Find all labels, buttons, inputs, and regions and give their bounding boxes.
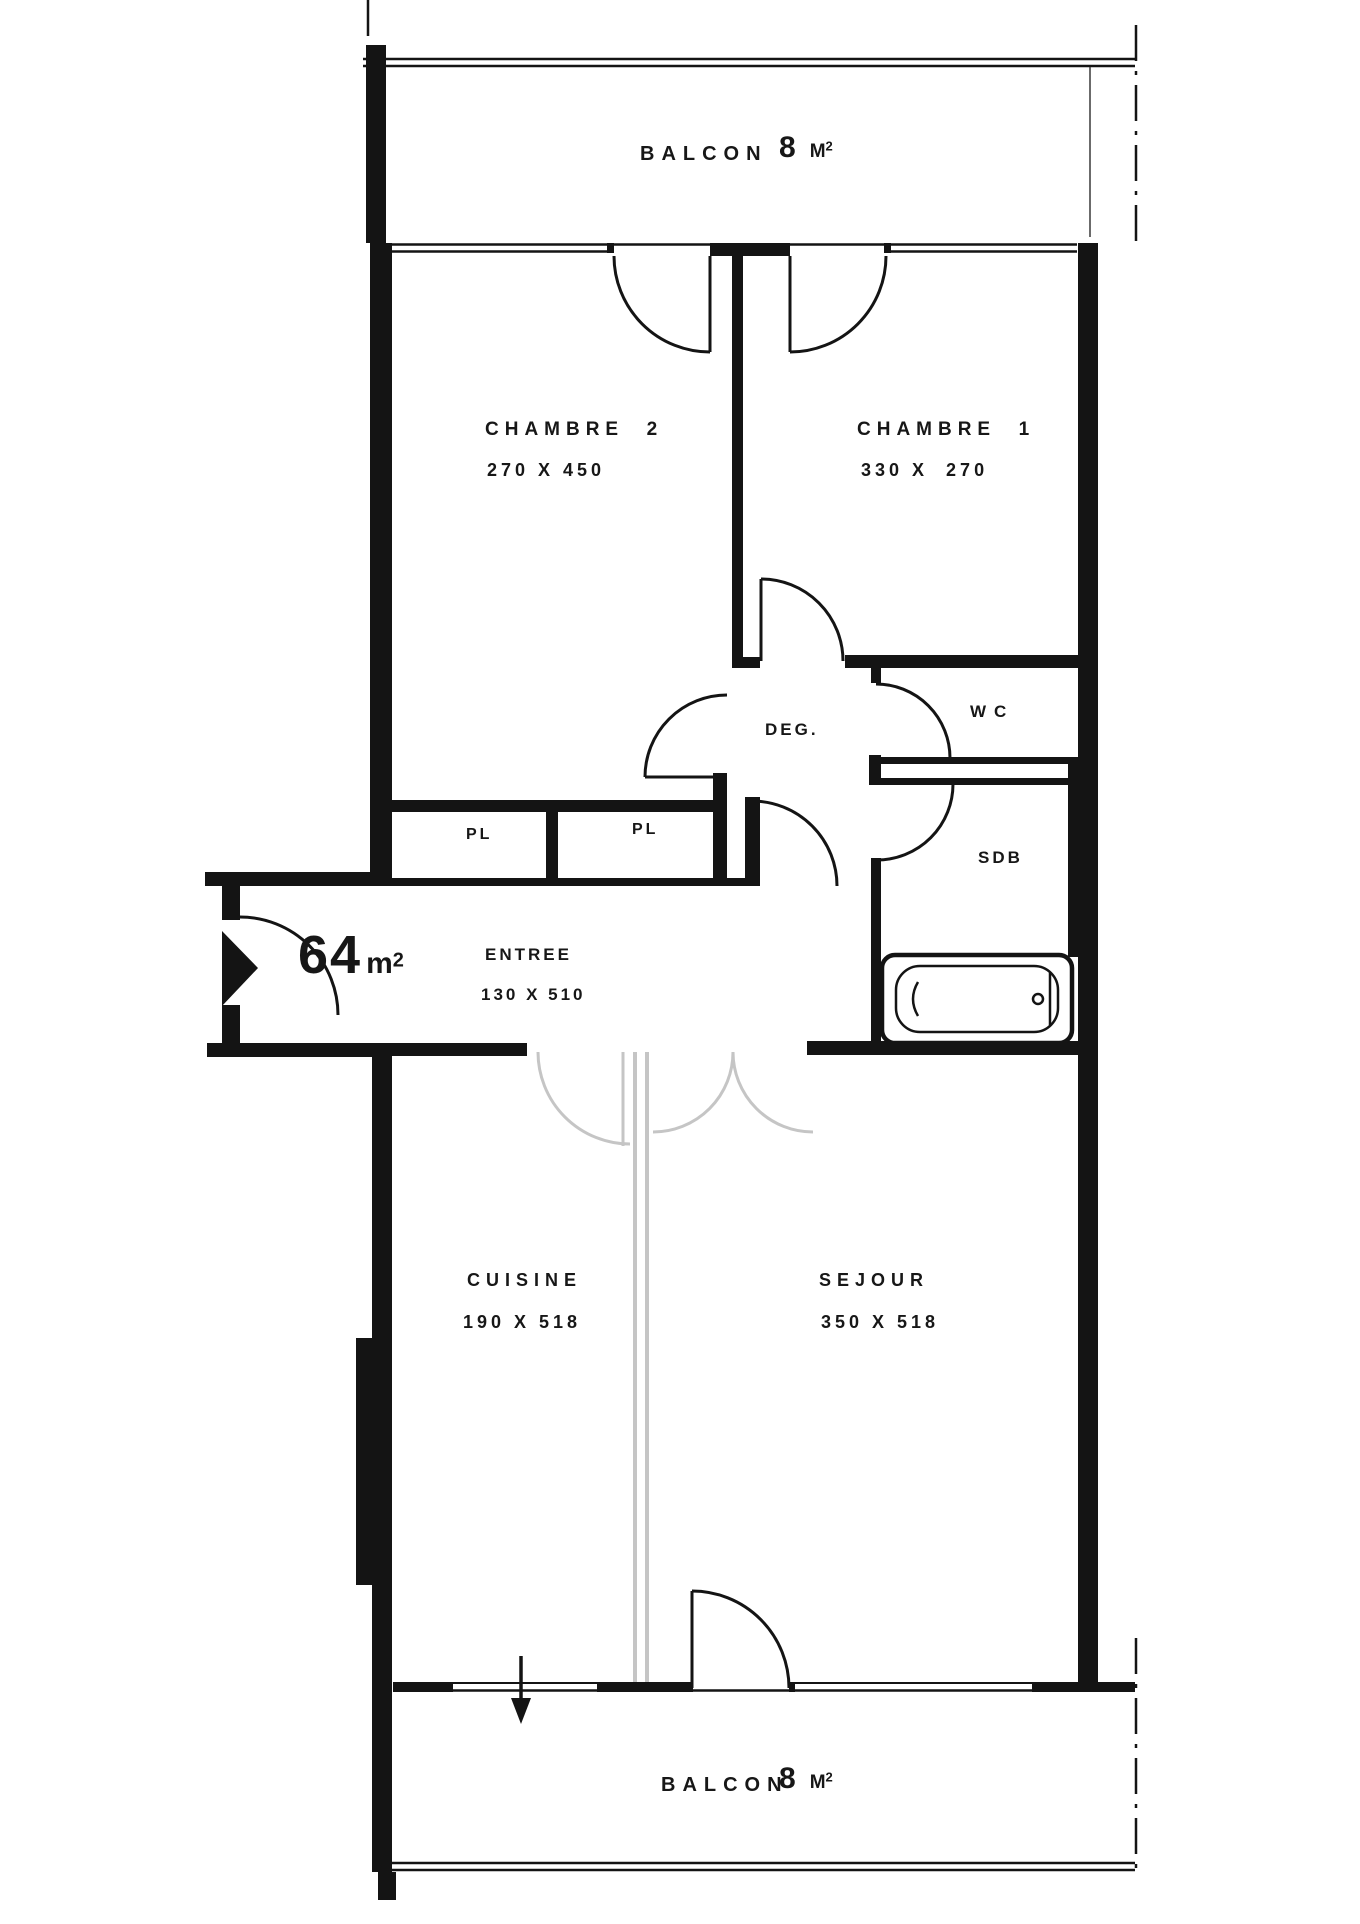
door-chambre2 — [645, 695, 727, 777]
balcony-top-area-unit: M — [810, 141, 826, 162]
wall-vestibule-west-lower — [222, 1005, 240, 1043]
window-band-bottom — [393, 1683, 1135, 1691]
wall-vestibule-top — [205, 872, 392, 886]
closet-right-label: PL — [632, 822, 658, 838]
floor-plan-page: BALCON 8M2 CHAMBRE 2 270 X 450 CHAMBRE 1… — [0, 0, 1360, 1924]
sejour-dims: 350 X 518 — [821, 1313, 939, 1331]
entree-label: ENTREE — [485, 946, 572, 963]
chambre1-label: CHAMBRE 1 — [857, 420, 1035, 439]
balcony-bottom-label: BALCON — [661, 1775, 789, 1795]
floor-plan-drawing — [0, 0, 1360, 1924]
balcony-top-area-value: 8 — [779, 131, 798, 164]
wall-balcony-left-bottom — [372, 1692, 392, 1872]
wall-sdb-west — [871, 858, 881, 1052]
door-sejour-balcony — [692, 1591, 789, 1688]
light-partition — [633, 1052, 649, 1682]
total-area-label: 64m2 — [298, 928, 404, 982]
jamb-top-right — [884, 243, 891, 253]
wall-entree-south-left — [374, 1043, 527, 1056]
wc-label: WC — [970, 703, 1014, 720]
jamb-wc-top — [871, 668, 881, 683]
balcony-bottom-area-value: 8 — [779, 1762, 798, 1795]
wall-right — [1078, 243, 1098, 1692]
chambre2-label: CHAMBRE 2 — [485, 420, 663, 439]
closet-left-label: PL — [466, 827, 492, 843]
wall-deg-jamb — [745, 797, 760, 886]
wall-wc-sdb-b — [881, 778, 1068, 785]
door-chambre1-balcony — [790, 256, 886, 352]
entree-dims: 130 X 510 — [481, 986, 586, 1003]
balcony-top-area-sup: 2 — [826, 139, 833, 154]
wall-left-pilaster — [356, 1338, 374, 1585]
balcony-top-area: 8M2 — [779, 133, 833, 163]
wall-wc-sdb-a — [881, 757, 1068, 764]
entry-arrow-icon — [222, 931, 258, 1006]
wall-vestibule-west-upper — [222, 886, 240, 920]
chambre1-dims: 330 X 270 — [861, 461, 988, 479]
door-sdb — [877, 784, 953, 860]
door-wc — [876, 684, 950, 758]
wall-vestibule-bottom — [207, 1043, 392, 1057]
wall-top-header — [710, 243, 790, 256]
sdb-label: SDB — [978, 849, 1023, 866]
wall-bottom-3 — [1032, 1682, 1135, 1692]
wall-right-nib — [1068, 757, 1078, 957]
total-area-sup: 2 — [393, 950, 404, 972]
total-area-unit: m — [366, 947, 393, 980]
wall-bedroom-divider — [732, 253, 743, 668]
balcony-railing-bottom — [378, 1863, 1135, 1870]
cuisine-dims: 190 X 518 — [463, 1313, 581, 1331]
door-chambre2-balcony — [614, 256, 710, 352]
wall-chambre1-south — [845, 655, 1078, 668]
balcony-bottom-area: 8M2 — [779, 1764, 833, 1794]
degagement-label: DEG. — [765, 721, 819, 738]
wall-entree-top — [392, 878, 760, 886]
light-doors — [538, 1052, 813, 1146]
total-area-value: 64 — [298, 925, 362, 985]
wall-left-upper — [370, 243, 392, 886]
wall-bedroom-divider-foot — [732, 657, 760, 668]
sejour-label: SEJOUR — [819, 1271, 929, 1289]
balcony-bottom-area-unit: M — [810, 1772, 826, 1793]
door-degagement — [752, 801, 837, 886]
wall-closet-east — [713, 773, 727, 886]
balcony-bottom-area-sup: 2 — [826, 1770, 833, 1785]
wall-bottom-1 — [393, 1682, 453, 1692]
cuisine-label: CUISINE — [467, 1271, 582, 1289]
chambre2-dims: 270 X 450 — [487, 461, 605, 479]
wall-balcony-left-top — [366, 45, 386, 243]
jamb-wc-sdb — [869, 755, 881, 785]
wall-closet-divider — [546, 800, 558, 882]
balcony-top-label: BALCON — [640, 144, 768, 164]
door-cuisine — [538, 1052, 630, 1146]
wall-balcony-left-stub — [378, 1872, 396, 1900]
property-line — [368, 0, 1136, 1874]
wall-bottom-2 — [597, 1682, 692, 1692]
door-sejour-double — [653, 1052, 813, 1132]
bathtub-icon — [882, 955, 1072, 1043]
jamb-top-left — [607, 243, 614, 253]
wall-left-lower — [372, 1043, 392, 1692]
door-chambre1 — [761, 579, 843, 661]
wall-chambre2-south — [392, 800, 727, 812]
